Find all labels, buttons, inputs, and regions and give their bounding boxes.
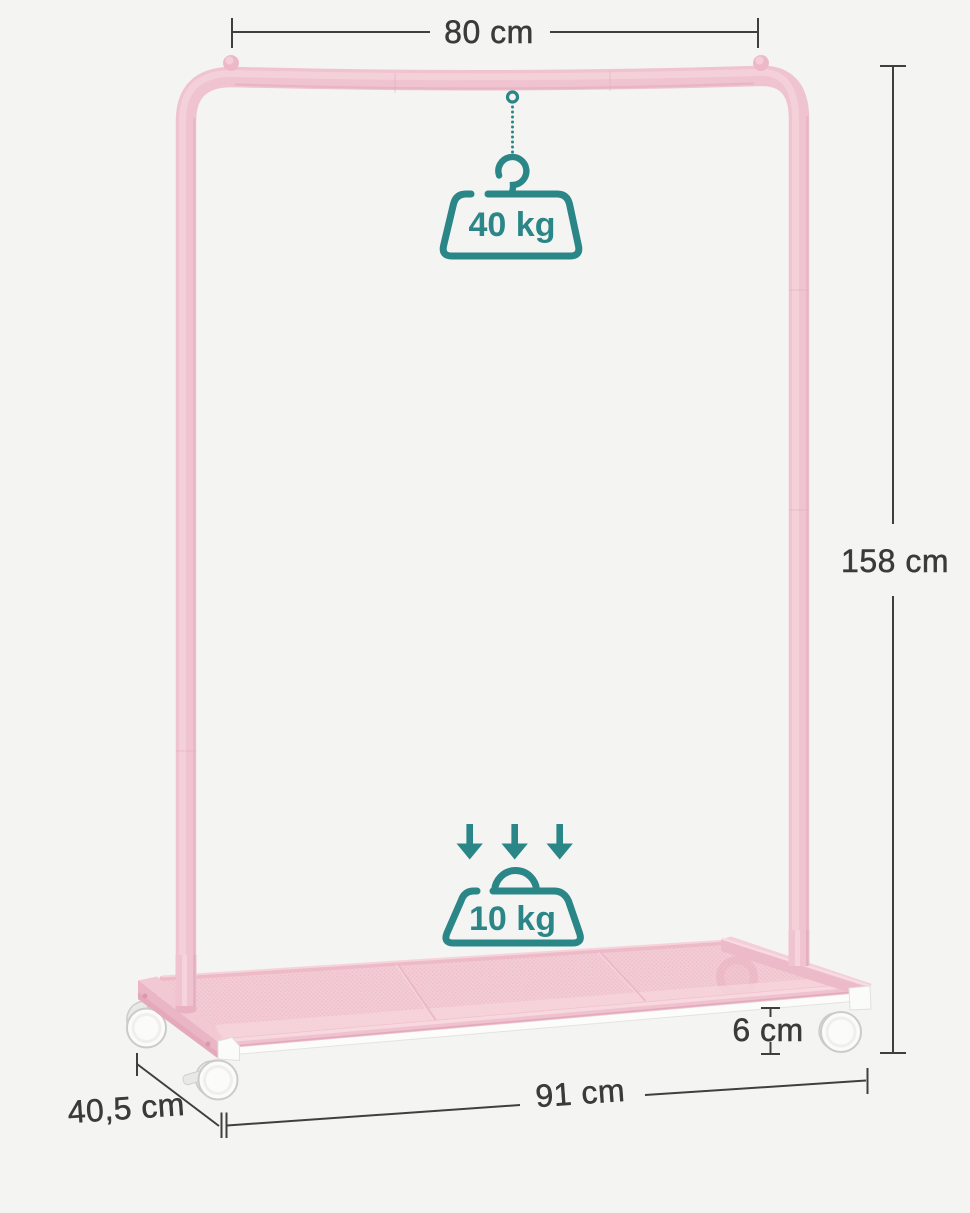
svg-text:40 kg: 40 kg	[469, 206, 556, 244]
svg-text:10 kg: 10 kg	[469, 900, 556, 938]
svg-text:158 cm: 158 cm	[841, 543, 949, 579]
svg-text:91 cm: 91 cm	[534, 1072, 626, 1114]
svg-text:80 cm: 80 cm	[444, 14, 534, 50]
svg-text:6 cm: 6 cm	[732, 1012, 803, 1048]
